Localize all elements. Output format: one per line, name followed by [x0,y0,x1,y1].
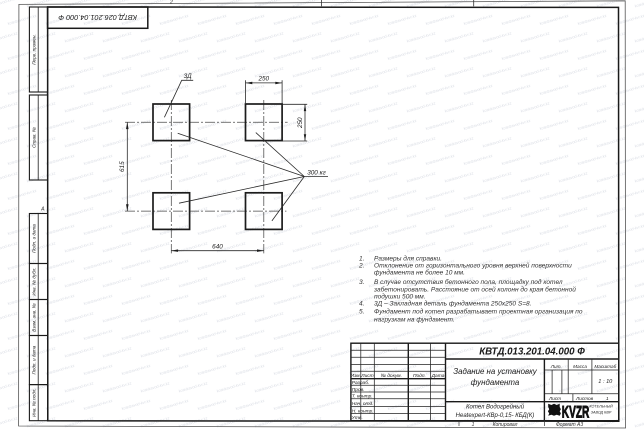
svg-text:kotelzavod-kvr.kz: kotelzavod-kvr.kz [539,293,569,306]
svg-text:kotelzavod-kvr.kz: kotelzavod-kvr.kz [577,118,607,131]
svg-text:Разраб.: Разраб. [352,380,370,386]
svg-text:Инв. № дубл.: Инв. № дубл. [31,267,36,295]
svg-text:kotelzavod-kvr.kz: kotelzavod-kvr.kz [216,30,246,43]
svg-text:Задание на установку: Задание на установку [453,367,538,376]
svg-text:3Д: 3Д [184,73,193,80]
svg-text:kotelzavod-kvr.kz: kotelzavod-kvr.kz [463,83,493,96]
svg-text:kotelzavod-kvr.kz: kotelzavod-kvr.kz [273,13,303,26]
svg-text:kotelzavod-kvr.kz: kotelzavod-kvr.kz [197,13,227,26]
svg-text:kotelzavod-kvr.kz: kotelzavod-kvr.kz [102,345,132,358]
svg-text:kotelzavod-kvr.kz: kotelzavod-kvr.kz [596,310,626,323]
svg-text:3.: 3. [359,279,365,286]
svg-text:kotelzavod-kvr.kz: kotelzavod-kvr.kz [634,170,644,183]
svg-text:kotelzavod-kvr.kz: kotelzavod-kvr.kz [520,100,550,113]
svg-text:kotelzavod-kvr.kz: kotelzavod-kvr.kz [368,65,398,78]
svg-text:kotelzavod-kvr.kz: kotelzavod-kvr.kz [596,100,626,113]
svg-text:Лист: Лист [360,373,373,379]
svg-text:kotelzavod-kvr.kz: kotelzavod-kvr.kz [349,153,379,166]
svg-text:1: 1 [472,422,475,428]
svg-text:kotelzavod-kvr.kz: kotelzavod-kvr.kz [463,13,493,26]
svg-text:kotelzavod-kvr.kz: kotelzavod-kvr.kz [273,328,303,341]
svg-text:kotelzavod-kvr.kz: kotelzavod-kvr.kz [178,30,208,43]
svg-text:kotelzavod-kvr.kz: kotelzavod-kvr.kz [444,205,474,218]
svg-text:kotelzavod-kvr.kz: kotelzavod-kvr.kz [273,48,303,61]
svg-text:kotelzavod-kvr.kz: kotelzavod-kvr.kz [235,13,265,26]
svg-text:kotelzavod-kvr.kz: kotelzavod-kvr.kz [387,398,417,411]
svg-text:kotelzavod-kvr.kz: kotelzavod-kvr.kz [444,30,474,43]
svg-text:kotelzavod-kvr.kz: kotelzavod-kvr.kz [216,310,246,323]
svg-text:kotelzavod-kvr.kz: kotelzavod-kvr.kz [634,0,644,8]
svg-text:kotelzavod-kvr.kz: kotelzavod-kvr.kz [425,328,455,341]
svg-text:kotelzavod-kvr.kz: kotelzavod-kvr.kz [197,293,227,306]
svg-text:kotelzavod-kvr.kz: kotelzavod-kvr.kz [292,345,322,358]
svg-text:kotelzavod-kvr.kz: kotelzavod-kvr.kz [83,48,113,61]
svg-text:kotelzavod-kvr.kz: kotelzavod-kvr.kz [311,13,341,26]
svg-text:kotelzavod-kvr.kz: kotelzavod-kvr.kz [577,48,607,61]
svg-text:kotelzavod-kvr.kz: kotelzavod-kvr.kz [482,135,512,148]
svg-text:kotelzavod-kvr.kz: kotelzavod-kvr.kz [140,135,170,148]
svg-text:kotelzavod-kvr.kz: kotelzavod-kvr.kz [330,135,360,148]
svg-text:kotelzavod-kvr.kz: kotelzavod-kvr.kz [140,65,170,78]
svg-text:kotelzavod-kvr.kz: kotelzavod-kvr.kz [45,118,75,131]
svg-text:kotelzavod-kvr.kz: kotelzavod-kvr.kz [121,83,151,96]
svg-text:kotelzavod-kvr.kz: kotelzavod-kvr.kz [0,240,18,253]
svg-text:kotelzavod-kvr.kz: kotelzavod-kvr.kz [406,135,436,148]
svg-text:kotelzavod-kvr.kz: kotelzavod-kvr.kz [197,258,227,271]
svg-text:Формат А3: Формат А3 [556,422,584,428]
svg-text:kotelzavod-kvr.kz: kotelzavod-kvr.kz [273,293,303,306]
svg-text:kotelzavod-kvr.kz: kotelzavod-kvr.kz [121,223,151,236]
svg-text:Копировал: Копировал [493,422,518,428]
svg-text:kotelzavod-kvr.kz: kotelzavod-kvr.kz [178,100,208,113]
svg-text:kotelzavod-kvr.kz: kotelzavod-kvr.kz [197,328,227,341]
svg-text:kotelzavod-kvr.kz: kotelzavod-kvr.kz [159,258,189,271]
svg-text:kotelzavod-kvr.kz: kotelzavod-kvr.kz [368,30,398,43]
svg-text:kotelzavod-kvr.kz: kotelzavod-kvr.kz [501,13,531,26]
svg-text:kotelzavod-kvr.kz: kotelzavod-kvr.kz [159,48,189,61]
svg-text:kotelzavod-kvr.kz: kotelzavod-kvr.kz [45,398,75,411]
svg-text:kotelzavod-kvr.kz: kotelzavod-kvr.kz [83,188,113,201]
svg-text:kotelzavod-kvr.kz: kotelzavod-kvr.kz [254,345,284,358]
svg-text:3Д – Закладная деталь фундамен: 3Д – Закладная деталь фундамента 250х250… [374,300,532,308]
svg-text:kotelzavod-kvr.kz: kotelzavod-kvr.kz [26,170,56,183]
svg-text:Нач. отд.: Нач. отд. [352,401,374,407]
svg-text:Т. контр.: Т. контр. [352,394,373,400]
svg-text:kotelzavod-kvr.kz: kotelzavod-kvr.kz [349,223,379,236]
svg-text:kotelzavod-kvr.kz: kotelzavod-kvr.kz [254,205,284,218]
svg-text:kotelzavod-kvr.kz: kotelzavod-kvr.kz [387,328,417,341]
svg-text:kotelzavod-kvr.kz: kotelzavod-kvr.kz [406,205,436,218]
svg-text:Масштаб: Масштаб [594,364,616,369]
svg-text:kotelzavod-kvr.kz: kotelzavod-kvr.kz [501,223,531,236]
svg-text:kotelzavod-kvr.kz: kotelzavod-kvr.kz [634,240,644,253]
svg-text:Подп.: Подп. [413,373,426,379]
svg-text:kotelzavod-kvr.kz: kotelzavod-kvr.kz [83,258,113,271]
svg-text:kotelzavod-kvr.kz: kotelzavod-kvr.kz [425,188,455,201]
svg-text:kotelzavod-kvr.kz: kotelzavod-kvr.kz [444,380,474,393]
svg-text:kotelzavod-kvr.kz: kotelzavod-kvr.kz [444,170,474,183]
svg-text:Изм.: Изм. [351,373,361,379]
svg-text:kotelzavod-kvr.kz: kotelzavod-kvr.kz [330,275,360,288]
svg-text:kotelzavod-kvr.kz: kotelzavod-kvr.kz [83,398,113,411]
svg-text:КВТД.013.201.04.000 Ф: КВТД.013.201.04.000 Ф [479,346,585,357]
svg-text:kotelzavod-kvr.kz: kotelzavod-kvr.kz [311,293,341,306]
svg-text:kotelzavod-kvr.kz: kotelzavod-kvr.kz [311,153,341,166]
svg-text:kotelzavod-kvr.kz: kotelzavod-kvr.kz [520,30,550,43]
svg-text:kotelzavod-kvr.kz: kotelzavod-kvr.kz [45,328,75,341]
svg-text:kotelzavod-kvr.kz: kotelzavod-kvr.kz [292,380,322,393]
svg-text:kotelzavod-kvr.kz: kotelzavod-kvr.kz [387,118,417,131]
svg-text:kotelzavod-kvr.kz: kotelzavod-kvr.kz [45,83,75,96]
svg-text:kotelzavod-kvr.kz: kotelzavod-kvr.kz [216,205,246,218]
svg-text:kotelzavod-kvr.kz: kotelzavod-kvr.kz [330,345,360,358]
svg-text:kotelzavod-kvr.kz: kotelzavod-kvr.kz [406,170,436,183]
svg-text:фундамента: фундамента [471,378,520,387]
svg-text:kotelzavod-kvr.kz: kotelzavod-kvr.kz [425,153,455,166]
svg-text:kotelzavod-kvr.kz: kotelzavod-kvr.kz [330,30,360,43]
svg-text:kotelzavod-kvr.kz: kotelzavod-kvr.kz [254,100,284,113]
svg-text:kotelzavod-kvr.kz: kotelzavod-kvr.kz [368,100,398,113]
svg-text:615: 615 [119,161,126,172]
svg-text:kotelzavod-kvr.kz: kotelzavod-kvr.kz [596,30,626,43]
svg-text:kotelzavod-kvr.kz: kotelzavod-kvr.kz [121,118,151,131]
svg-text:kotelzavod-kvr.kz: kotelzavod-kvr.kz [140,30,170,43]
svg-text:kotelzavod-kvr.kz: kotelzavod-kvr.kz [406,415,436,428]
svg-text:Подп. и дата: Подп. и дата [31,224,36,253]
svg-text:kotelzavod-kvr.kz: kotelzavod-kvr.kz [0,0,18,8]
svg-text:kotelzavod-kvr.kz: kotelzavod-kvr.kz [368,345,398,358]
svg-text:kotelzavod-kvr.kz: kotelzavod-kvr.kz [216,100,246,113]
svg-text:kotelzavod-kvr.kz: kotelzavod-kvr.kz [64,275,94,288]
svg-text:kotelzavod-kvr.kz: kotelzavod-kvr.kz [45,258,75,271]
svg-text:kotelzavod-kvr.kz: kotelzavod-kvr.kz [387,83,417,96]
svg-text:kotelzavod-kvr.kz: kotelzavod-kvr.kz [520,240,550,253]
svg-text:kotelzavod-kvr.kz: kotelzavod-kvr.kz [235,258,265,271]
svg-text:kotelzavod-kvr.kz: kotelzavod-kvr.kz [273,398,303,411]
svg-text:kotelzavod-kvr.kz: kotelzavod-kvr.kz [425,118,455,131]
svg-text:kotelzavod-kvr.kz: kotelzavod-kvr.kz [368,415,398,428]
svg-text:kotelzavod-kvr.kz: kotelzavod-kvr.kz [0,345,18,358]
svg-text:kotelzavod-kvr.kz: kotelzavod-kvr.kz [558,135,588,148]
svg-text:kotelzavod-kvr.kz: kotelzavod-kvr.kz [330,205,360,218]
svg-text:Heatexpert-КВр-0,15- КБД(К): Heatexpert-КВр-0,15- КБД(К) [456,413,535,419]
svg-text:kotelzavod-kvr.kz: kotelzavod-kvr.kz [216,135,246,148]
svg-text:Пров.: Пров. [352,387,365,393]
svg-text:kotelzavod-kvr.kz: kotelzavod-kvr.kz [577,258,607,271]
svg-text:250: 250 [257,76,269,83]
svg-text:kotelzavod-kvr.kz: kotelzavod-kvr.kz [102,100,132,113]
svg-text:kotelzavod-kvr.kz: kotelzavod-kvr.kz [482,65,512,78]
svg-text:kotelzavod-kvr.kz: kotelzavod-kvr.kz [482,30,512,43]
svg-text:kotelzavod-kvr.kz: kotelzavod-kvr.kz [159,328,189,341]
svg-text:kotelzavod-kvr.kz: kotelzavod-kvr.kz [596,205,626,218]
svg-text:kotelzavod-kvr.kz: kotelzavod-kvr.kz [406,380,436,393]
svg-text:1.: 1. [359,255,365,262]
svg-text:kotelzavod-kvr.kz: kotelzavod-kvr.kz [273,363,303,376]
svg-text:kotelzavod-kvr.kz: kotelzavod-kvr.kz [577,328,607,341]
svg-text:kotelzavod-kvr.kz: kotelzavod-kvr.kz [539,328,569,341]
svg-text:kotelzavod-kvr.kz: kotelzavod-kvr.kz [102,380,132,393]
svg-text:kotelzavod-kvr.kz: kotelzavod-kvr.kz [311,188,341,201]
svg-text:kotelzavod-kvr.kz: kotelzavod-kvr.kz [558,205,588,218]
svg-text:kotelzavod-kvr.kz: kotelzavod-kvr.kz [216,345,246,358]
svg-text:kotelzavod-kvr.kz: kotelzavod-kvr.kz [558,30,588,43]
svg-text:Справ. №: Справ. № [31,127,36,148]
svg-text:kotelzavod-kvr.kz: kotelzavod-kvr.kz [463,223,493,236]
svg-text:kotelzavod-kvr.kz: kotelzavod-kvr.kz [311,83,341,96]
svg-text:kotelzavod-kvr.kz: kotelzavod-kvr.kz [463,48,493,61]
svg-text:kotelzavod-kvr.kz: kotelzavod-kvr.kz [102,275,132,288]
svg-text:kotelzavod-kvr.kz: kotelzavod-kvr.kz [26,100,56,113]
svg-text:kotelzavod-kvr.kz: kotelzavod-kvr.kz [634,30,644,43]
svg-text:kotelzavod-kvr.kz: kotelzavod-kvr.kz [140,240,170,253]
svg-text:kotelzavod-kvr.kz: kotelzavod-kvr.kz [539,48,569,61]
svg-text:подушки 500 мм.: подушки 500 мм. [374,292,426,300]
svg-text:kotelzavod-kvr.kz: kotelzavod-kvr.kz [254,135,284,148]
svg-text:kotelzavod-kvr.kz: kotelzavod-kvr.kz [64,170,94,183]
svg-text:kotelzavod-kvr.kz: kotelzavod-kvr.kz [235,48,265,61]
svg-text:kotelzavod-kvr.kz: kotelzavod-kvr.kz [406,240,436,253]
svg-text:kotelzavod-kvr.kz: kotelzavod-kvr.kz [501,153,531,166]
svg-text:kotelzavod-kvr.kz: kotelzavod-kvr.kz [7,153,37,166]
svg-text:kotelzavod-kvr.kz: kotelzavod-kvr.kz [311,363,341,376]
svg-text:kotelzavod-kvr.kz: kotelzavod-kvr.kz [425,398,455,411]
svg-text:kotelzavod-kvr.kz: kotelzavod-kvr.kz [330,65,360,78]
svg-text:kotelzavod-kvr.kz: kotelzavod-kvr.kz [577,13,607,26]
svg-text:kotelzavod-kvr.kz: kotelzavod-kvr.kz [159,153,189,166]
svg-text:kotelzavod-kvr.kz: kotelzavod-kvr.kz [0,380,18,393]
svg-text:5.: 5. [359,308,365,315]
svg-text:А: А [40,207,45,213]
svg-text:kotelzavod-kvr.kz: kotelzavod-kvr.kz [197,153,227,166]
svg-text:300 кг: 300 кг [307,169,326,176]
svg-text:kotelzavod-kvr.kz: kotelzavod-kvr.kz [292,65,322,78]
svg-text:kotelzavod-kvr.kz: kotelzavod-kvr.kz [197,83,227,96]
svg-text:kotelzavod-kvr.kz: kotelzavod-kvr.kz [406,30,436,43]
svg-text:kotelzavod-kvr.kz: kotelzavod-kvr.kz [197,188,227,201]
svg-text:kotelzavod-kvr.kz: kotelzavod-kvr.kz [235,293,265,306]
svg-text:kotelzavod-kvr.kz: kotelzavod-kvr.kz [140,310,170,323]
svg-text:kotelzavod-kvr.kz: kotelzavod-kvr.kz [349,118,379,131]
svg-text:kotelzavod-kvr.kz: kotelzavod-kvr.kz [311,258,341,271]
svg-text:kotelzavod-kvr.kz: kotelzavod-kvr.kz [406,65,436,78]
svg-text:kotelzavod-kvr.kz: kotelzavod-kvr.kz [254,380,284,393]
svg-text:kotelzavod-kvr.kz: kotelzavod-kvr.kz [178,310,208,323]
svg-text:kotelzavod-kvr.kz: kotelzavod-kvr.kz [102,65,132,78]
svg-text:1: 1 [606,396,609,401]
svg-text:kotelzavod-kvr.kz: kotelzavod-kvr.kz [444,135,474,148]
svg-text:kotelzavod-kvr.kz: kotelzavod-kvr.kz [121,258,151,271]
svg-text:kotelzavod-kvr.kz: kotelzavod-kvr.kz [387,13,417,26]
svg-text:kotelzavod-kvr.kz: kotelzavod-kvr.kz [368,380,398,393]
svg-text:250: 250 [297,117,304,129]
svg-text:kotelzavod-kvr.kz: kotelzavod-kvr.kz [140,345,170,358]
svg-text:kotelzavod-kvr.kz: kotelzavod-kvr.kz [311,398,341,411]
svg-text:КВТД.026.201.04.000 Ф: КВТД.026.201.04.000 Ф [58,13,137,22]
svg-text:kotelzavod-kvr.kz: kotelzavod-kvr.kz [159,188,189,201]
svg-text:kotelzavod-kvr.kz: kotelzavod-kvr.kz [273,258,303,271]
svg-text:kotelzavod-kvr.kz: kotelzavod-kvr.kz [197,398,227,411]
svg-text:kotelzavod-kvr.kz: kotelzavod-kvr.kz [45,293,75,306]
svg-text:kotelzavod-kvr.kz: kotelzavod-kvr.kz [349,48,379,61]
svg-text:kotelzavod-kvr.kz: kotelzavod-kvr.kz [539,13,569,26]
svg-text:kotelzavod-kvr.kz: kotelzavod-kvr.kz [311,328,341,341]
svg-text:kotelzavod-kvr.kz: kotelzavod-kvr.kz [292,100,322,113]
svg-text:kotelzavod-kvr.kz: kotelzavod-kvr.kz [368,240,398,253]
svg-text:kotelzavod-kvr.kz: kotelzavod-kvr.kz [463,188,493,201]
svg-text:kotelzavod-kvr.kz: kotelzavod-kvr.kz [520,205,550,218]
svg-text:kotelzavod-kvr.kz: kotelzavod-kvr.kz [26,65,56,78]
svg-text:kotelzavod-kvr.kz: kotelzavod-kvr.kz [482,240,512,253]
svg-text:забетонировать. Расстояние от: забетонировать. Расстояние от осей колон… [373,286,576,294]
svg-text:kotelzavod-kvr.kz: kotelzavod-kvr.kz [463,328,493,341]
svg-text:kotelzavod-kvr.kz: kotelzavod-kvr.kz [216,170,246,183]
svg-text:kotelzavod-kvr.kz: kotelzavod-kvr.kz [292,415,322,428]
svg-text:kotelzavod-kvr.kz: kotelzavod-kvr.kz [349,83,379,96]
svg-text:kotelzavod-kvr.kz: kotelzavod-kvr.kz [159,398,189,411]
svg-text:kotelzavod-kvr.kz: kotelzavod-kvr.kz [482,100,512,113]
svg-text:kotelzavod-kvr.kz: kotelzavod-kvr.kz [539,223,569,236]
svg-text:kotelzavod-kvr.kz: kotelzavod-kvr.kz [558,380,588,393]
svg-text:kotelzavod-kvr.kz: kotelzavod-kvr.kz [45,223,75,236]
svg-text:kotelzavod-kvr.kz: kotelzavod-kvr.kz [311,118,341,131]
svg-text:kotelzavod-kvr.kz: kotelzavod-kvr.kz [349,188,379,201]
svg-text:kotelzavod-kvr.kz: kotelzavod-kvr.kz [121,293,151,306]
svg-text:kotelzavod-kvr.kz: kotelzavod-kvr.kz [577,223,607,236]
svg-text:kotelzavod-kvr.kz: kotelzavod-kvr.kz [292,240,322,253]
svg-text:kotelzavod-kvr.kz: kotelzavod-kvr.kz [292,135,322,148]
svg-text:kotelzavod-kvr.kz: kotelzavod-kvr.kz [121,328,151,341]
svg-text:kotelzavod-kvr.kz: kotelzavod-kvr.kz [444,345,474,358]
svg-text:kotelzavod-kvr.kz: kotelzavod-kvr.kz [520,65,550,78]
svg-text:kotelzavod-kvr.kz: kotelzavod-kvr.kz [406,100,436,113]
svg-text:kotelzavod-kvr.kz: kotelzavod-kvr.kz [406,345,436,358]
svg-text:kotelzavod-kvr.kz: kotelzavod-kvr.kz [596,275,626,288]
svg-text:kotelzavod-kvr.kz: kotelzavod-kvr.kz [140,275,170,288]
svg-text:kotelzavod-kvr.kz: kotelzavod-kvr.kz [235,398,265,411]
svg-text:4.: 4. [359,301,365,308]
svg-text:kotelzavod-kvr.kz: kotelzavod-kvr.kz [140,170,170,183]
svg-text:kotelzavod-kvr.kz: kotelzavod-kvr.kz [577,188,607,201]
svg-text:kotelzavod-kvr.kz: kotelzavod-kvr.kz [121,363,151,376]
svg-text:kotelzavod-kvr.kz: kotelzavod-kvr.kz [178,205,208,218]
svg-text:kotelzavod-kvr.kz: kotelzavod-kvr.kz [197,223,227,236]
svg-text:kotelzavod-kvr.kz: kotelzavod-kvr.kz [330,310,360,323]
svg-text:kotelzavod-kvr.kz: kotelzavod-kvr.kz [539,118,569,131]
svg-text:нагрузкам на фундамент.: нагрузкам на фундамент. [374,315,455,323]
svg-text:kotelzavod-kvr.kz: kotelzavod-kvr.kz [235,328,265,341]
svg-text:2: 2 [169,0,173,5]
svg-text:kotelzavod-kvr.kz: kotelzavod-kvr.kz [463,153,493,166]
svg-text:kotelzavod-kvr.kz: kotelzavod-kvr.kz [178,345,208,358]
svg-text:КОТЕЛЬНЫЙ: КОТЕЛЬНЫЙ [589,405,613,409]
svg-text:kotelzavod-kvr.kz: kotelzavod-kvr.kz [558,65,588,78]
svg-text:kotelzavod-kvr.kz: kotelzavod-kvr.kz [0,415,18,428]
svg-text:kotelzavod-kvr.kz: kotelzavod-kvr.kz [140,100,170,113]
svg-text:kotelzavod-kvr.kz: kotelzavod-kvr.kz [83,363,113,376]
svg-text:kotelzavod-kvr.kz: kotelzavod-kvr.kz [7,13,37,26]
svg-text:kotelzavod-kvr.kz: kotelzavod-kvr.kz [140,380,170,393]
svg-text:kotelzavod-kvr.kz: kotelzavod-kvr.kz [197,363,227,376]
svg-text:kotelzavod-kvr.kz: kotelzavod-kvr.kz [596,170,626,183]
svg-text:kotelzavod-kvr.kz: kotelzavod-kvr.kz [45,48,75,61]
svg-text:kotelzavod-kvr.kz: kotelzavod-kvr.kz [254,30,284,43]
svg-text:kotelzavod-kvr.kz: kotelzavod-kvr.kz [121,48,151,61]
svg-text:kotelzavod-kvr.kz: kotelzavod-kvr.kz [501,48,531,61]
svg-text:kotelzavod-kvr.kz: kotelzavod-kvr.kz [178,380,208,393]
svg-text:kotelzavod-kvr.kz: kotelzavod-kvr.kz [216,275,246,288]
svg-text:kotelzavod-kvr.kz: kotelzavod-kvr.kz [83,153,113,166]
svg-text:kotelzavod-kvr.kz: kotelzavod-kvr.kz [45,188,75,201]
svg-text:Фундамент под котел разрабатыв: Фундамент под котел разрабатывает проект… [374,307,583,315]
svg-text:kotelzavod-kvr.kz: kotelzavod-kvr.kz [121,398,151,411]
svg-text:kotelzavod-kvr.kz: kotelzavod-kvr.kz [159,13,189,26]
svg-text:kotelzavod-kvr.kz: kotelzavod-kvr.kz [102,30,132,43]
svg-text:kotelzavod-kvr.kz: kotelzavod-kvr.kz [634,275,644,288]
svg-text:kotelzavod-kvr.kz: kotelzavod-kvr.kz [349,13,379,26]
svg-text:kotelzavod-kvr.kz: kotelzavod-kvr.kz [501,118,531,131]
svg-text:kotelzavod-kvr.kz: kotelzavod-kvr.kz [425,83,455,96]
svg-text:В случае отсутствия бетонного: В случае отсутствия бетонного пола, площ… [374,278,563,286]
svg-text:kotelzavod-kvr.kz: kotelzavod-kvr.kz [444,100,474,113]
svg-text:kotelzavod-kvr.kz: kotelzavod-kvr.kz [387,48,417,61]
svg-text:kotelzavod-kvr.kz: kotelzavod-kvr.kz [0,65,18,78]
svg-text:kotelzavod-kvr.kz: kotelzavod-kvr.kz [7,83,37,96]
svg-text:kotelzavod-kvr.kz: kotelzavod-kvr.kz [235,83,265,96]
svg-text:Котел Водогрейный: Котел Водогрейный [466,404,525,411]
svg-text:kotelzavod-kvr.kz: kotelzavod-kvr.kz [539,153,569,166]
svg-text:kotelzavod-kvr.kz: kotelzavod-kvr.kz [64,135,94,148]
svg-text:kotelzavod-kvr.kz: kotelzavod-kvr.kz [425,13,455,26]
svg-text:kotelzavod-kvr.kz: kotelzavod-kvr.kz [634,205,644,218]
svg-text:kotelzavod-kvr.kz: kotelzavod-kvr.kz [634,345,644,358]
svg-text:kotelzavod-kvr.kz: kotelzavod-kvr.kz [577,83,607,96]
svg-text:kotelzavod-kvr.kz: kotelzavod-kvr.kz [64,205,94,218]
svg-text:kotelzavod-kvr.kz: kotelzavod-kvr.kz [0,30,18,43]
svg-text:kotelzavod-kvr.kz: kotelzavod-kvr.kz [558,240,588,253]
svg-text:kotelzavod-kvr.kz: kotelzavod-kvr.kz [235,363,265,376]
svg-text:kotelzavod-kvr.kz: kotelzavod-kvr.kz [159,118,189,131]
svg-text:kotelzavod-kvr.kz: kotelzavod-kvr.kz [634,310,644,323]
svg-text:kotelzavod-kvr.kz: kotelzavod-kvr.kz [634,380,644,393]
svg-text:kotelzavod-kvr.kz: kotelzavod-kvr.kz [311,48,341,61]
svg-text:Инв. № подл.: Инв. № подл. [31,388,36,417]
svg-text:kotelzavod-kvr.kz: kotelzavod-kvr.kz [444,240,474,253]
svg-text:kotelzavod-kvr.kz: kotelzavod-kvr.kz [216,65,246,78]
svg-text:kotelzavod-kvr.kz: kotelzavod-kvr.kz [83,223,113,236]
svg-text:kotelzavod-kvr.kz: kotelzavod-kvr.kz [292,30,322,43]
svg-text:kotelzavod-kvr.kz: kotelzavod-kvr.kz [254,275,284,288]
svg-text:kotelzavod-kvr.kz: kotelzavod-kvr.kz [387,223,417,236]
svg-text:№ докум.: № докум. [381,373,402,379]
svg-text:kotelzavod-kvr.kz: kotelzavod-kvr.kz [254,310,284,323]
svg-text:kotelzavod-kvr.kz: kotelzavod-kvr.kz [330,100,360,113]
svg-text:kotelzavod-kvr.kz: kotelzavod-kvr.kz [501,188,531,201]
svg-text:kotelzavod-kvr.kz: kotelzavod-kvr.kz [45,363,75,376]
svg-text:ЗАВОД КВР: ЗАВОД КВР [591,411,612,415]
svg-text:kotelzavod-kvr.kz: kotelzavod-kvr.kz [330,240,360,253]
svg-text:kotelzavod-kvr.kz: kotelzavod-kvr.kz [178,240,208,253]
svg-text:kotelzavod-kvr.kz: kotelzavod-kvr.kz [634,415,644,428]
svg-text:kotelzavod-kvr.kz: kotelzavod-kvr.kz [634,65,644,78]
svg-text:Дата: Дата [431,373,445,379]
svg-text:kotelzavod-kvr.kz: kotelzavod-kvr.kz [0,310,18,323]
svg-text:kotelzavod-kvr.kz: kotelzavod-kvr.kz [140,205,170,218]
svg-text:kotelzavod-kvr.kz: kotelzavod-kvr.kz [64,380,94,393]
svg-text:2.: 2. [358,263,365,270]
svg-text:фундамента не более 10 мм.: фундамента не более 10 мм. [374,269,465,277]
svg-text:kotelzavod-kvr.kz: kotelzavod-kvr.kz [615,13,644,26]
